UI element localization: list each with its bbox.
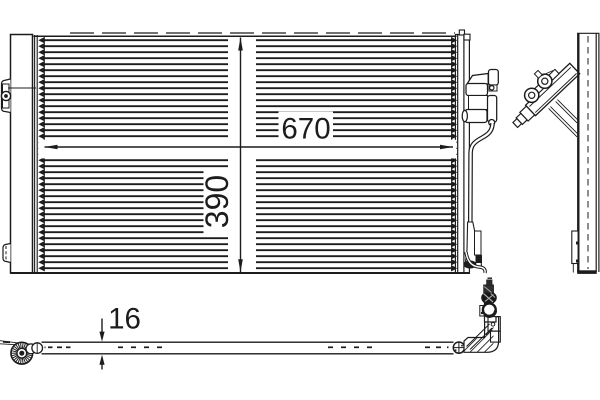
svg-text:670: 670	[281, 113, 330, 146]
svg-text:16: 16	[108, 303, 141, 336]
svg-text:390: 390	[199, 175, 235, 228]
